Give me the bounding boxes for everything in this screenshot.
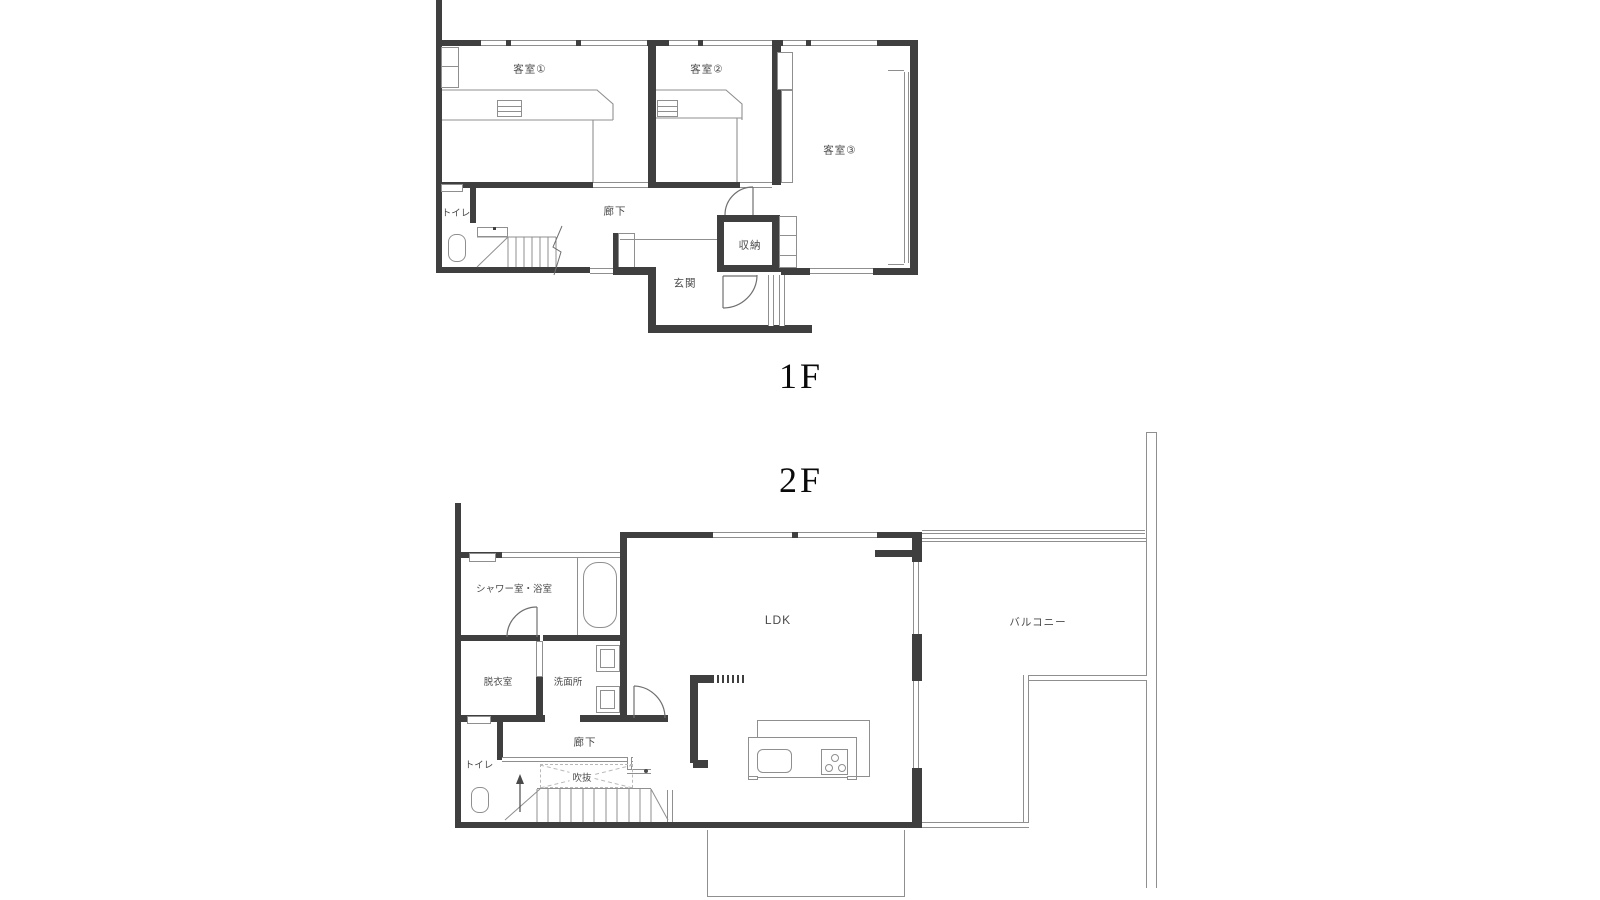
closet xyxy=(781,90,793,183)
window-mullion xyxy=(576,40,581,46)
balcony-fence xyxy=(1146,432,1157,888)
toilet-bowl-icon xyxy=(471,787,489,813)
wall xyxy=(470,185,476,223)
wall xyxy=(912,634,922,681)
burner-icon xyxy=(838,764,846,772)
counter-foot xyxy=(847,776,857,780)
wall xyxy=(580,715,668,722)
pillow-line xyxy=(497,111,522,112)
window-line xyxy=(913,562,919,634)
stairs-2f-lines xyxy=(505,789,668,822)
bed-pillow xyxy=(497,100,522,117)
pillow-line xyxy=(497,106,522,107)
room-label-ldk: LDK xyxy=(765,613,791,627)
balcony-edge xyxy=(922,538,1147,542)
shoe-cabinet xyxy=(779,216,797,268)
wall xyxy=(690,683,698,763)
window-line xyxy=(502,552,620,558)
wall xyxy=(717,215,777,222)
window-line xyxy=(913,681,919,768)
sliding-door-leaf xyxy=(536,641,543,677)
room-label-toilet-2f: トイレ xyxy=(465,757,494,771)
wall-stub xyxy=(875,550,922,557)
window-line xyxy=(713,532,792,538)
burner-icon xyxy=(825,764,833,772)
room-label-washroom: 洗面所 xyxy=(554,674,583,688)
room-label-entrance: 玄関 xyxy=(674,276,697,291)
wall xyxy=(648,40,656,185)
shelf-line xyxy=(779,255,797,256)
wall xyxy=(627,532,713,538)
closet xyxy=(441,47,459,88)
stair-dot xyxy=(493,227,496,230)
counter-foot xyxy=(748,776,758,780)
wall xyxy=(693,760,708,768)
floor-title-2f: 2F xyxy=(779,459,823,501)
wall xyxy=(620,532,627,722)
wall xyxy=(455,635,540,641)
bath-divider xyxy=(577,557,578,635)
room-label-balcony: バルコニー xyxy=(1009,615,1066,630)
shelf-line xyxy=(779,235,797,236)
window-line xyxy=(904,72,909,263)
bathtub-icon xyxy=(583,562,617,628)
toilet-window xyxy=(467,716,491,724)
wall xyxy=(912,532,922,562)
toilet-bowl-icon xyxy=(448,234,466,262)
wall xyxy=(873,268,918,275)
balcony-edge xyxy=(922,822,1029,828)
window-line xyxy=(593,182,648,188)
wall xyxy=(912,768,922,822)
pillow-line xyxy=(657,111,678,112)
wall xyxy=(543,635,627,641)
floor-title-1f: 1F xyxy=(779,355,823,397)
floorplan-canvas: 客室① 客室② 客室③ トイレ 廊下 収納 玄関 1F 2F シャワー室・浴室 … xyxy=(0,0,1600,900)
window-line xyxy=(590,268,613,274)
wall xyxy=(690,675,712,683)
room-label-guest3: 客室③ xyxy=(823,143,856,158)
room-label-shower-bath: シャワー室・浴室 xyxy=(476,581,552,595)
window-tick xyxy=(888,70,904,71)
room-label-storage: 収納 xyxy=(739,238,762,253)
wall xyxy=(717,215,724,272)
wall-thin xyxy=(667,790,673,822)
wall xyxy=(455,822,922,828)
balcony-edge xyxy=(922,530,1145,534)
room-label-guest2: 客室② xyxy=(690,62,723,77)
bed-outlines xyxy=(442,90,742,182)
pillow-line xyxy=(657,106,678,107)
shelf-line xyxy=(441,66,459,67)
stair-top-line xyxy=(537,788,651,789)
shower-window xyxy=(469,553,496,562)
wall xyxy=(648,182,740,188)
wall-thin xyxy=(779,275,785,326)
wall xyxy=(648,267,656,331)
bed-pillow xyxy=(657,100,678,117)
void-border xyxy=(502,757,633,762)
window-tick xyxy=(888,264,904,265)
wall xyxy=(436,40,481,46)
wall xyxy=(910,40,918,275)
window-line xyxy=(669,40,773,46)
balcony-edge xyxy=(1023,675,1029,828)
wall xyxy=(781,268,810,275)
wall xyxy=(648,325,812,333)
lower-extension xyxy=(707,830,905,897)
window-mullion xyxy=(698,40,703,46)
room-label-corridor-1f: 廊下 xyxy=(604,204,627,219)
burner-icon xyxy=(831,754,839,762)
window-line xyxy=(740,182,772,188)
washer-fixture-inner xyxy=(600,649,615,668)
room-label-corridor-2f: 廊下 xyxy=(574,735,597,750)
window-mullion xyxy=(506,40,511,46)
sink-fixture-inner xyxy=(600,690,615,709)
room-label-void: 吹抜 xyxy=(569,770,594,784)
wall xyxy=(497,722,503,760)
kitchen-sink xyxy=(757,749,792,773)
balcony-edge xyxy=(1023,675,1147,681)
room-label-guest1: 客室① xyxy=(513,62,546,77)
railing-hatch xyxy=(712,675,745,683)
closet xyxy=(777,52,793,90)
wall-thin xyxy=(768,275,774,326)
window-line xyxy=(783,40,877,46)
room-label-dressing: 脱衣室 xyxy=(484,674,513,688)
window-line xyxy=(810,268,873,274)
wall xyxy=(436,267,590,273)
room-label-toilet-1f: トイレ xyxy=(442,205,471,219)
entrance-step-line xyxy=(620,239,717,240)
toilet-window xyxy=(441,184,463,192)
window-mullion xyxy=(806,40,811,46)
window-line xyxy=(798,532,877,538)
